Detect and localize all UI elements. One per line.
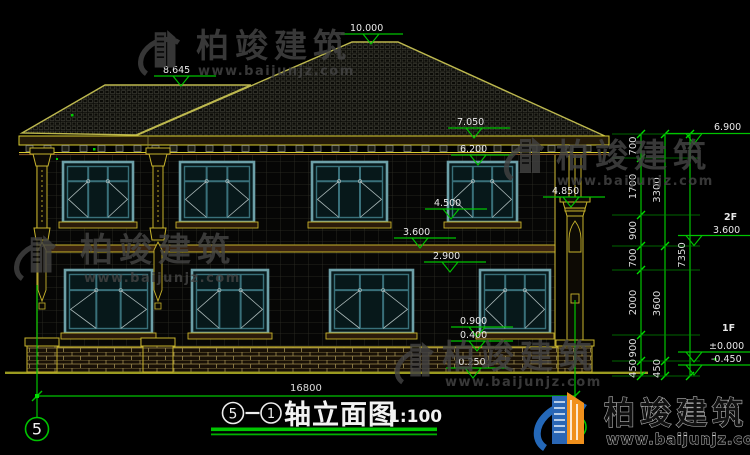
dentil	[314, 146, 321, 152]
level-6900: 6.900	[714, 122, 741, 133]
overall-width-value: 16800	[290, 383, 322, 394]
title-underline-thick	[211, 428, 437, 432]
watermark-brand: 柏竣建筑	[80, 230, 236, 269]
watermark-url: www.baijunjz.com	[84, 271, 241, 286]
dentil	[170, 146, 177, 152]
cad-elevation-drawing: 10.0008.6457.0506.2004.8504.5003.6002.90…	[0, 0, 750, 455]
dimension-value: 2000	[628, 290, 639, 315]
brand-url: www.baijunjz.com	[606, 432, 750, 448]
dimension-value: 900	[628, 338, 639, 357]
elevation-value: 2.900	[433, 251, 460, 262]
drawing-canvas: 10.0008.6457.0506.2004.8504.5003.6002.90…	[0, 0, 750, 455]
dentil	[116, 146, 123, 152]
watermark-url: www.baijunjz.com	[198, 64, 355, 79]
window-2f-1	[59, 162, 137, 228]
dentil	[350, 146, 357, 152]
watermark-brand: 柏竣建筑	[556, 136, 712, 175]
elevation-value: 6.200	[460, 144, 487, 155]
window-1f-3	[326, 270, 417, 339]
dentil	[242, 146, 249, 152]
watermark-url: www.baijunjz.com	[557, 174, 714, 189]
dentil	[296, 146, 303, 152]
dentil	[440, 146, 447, 152]
dimension-value: 900	[628, 221, 639, 240]
elevation-value: 4.500	[434, 198, 461, 209]
dentil	[260, 146, 267, 152]
watermark-url: www.baijunjz.com	[445, 375, 602, 390]
window-sill	[308, 222, 391, 228]
title-axis-5: 5	[229, 407, 238, 423]
window-sill	[326, 333, 417, 339]
dentil	[332, 146, 339, 152]
window-1f-4	[476, 270, 554, 339]
dentil	[278, 146, 285, 152]
dentil	[494, 146, 501, 152]
floor2-label: 2F	[724, 212, 737, 223]
watermark-brand: 柏竣建筑	[442, 337, 598, 376]
dimension-value: 450	[652, 359, 663, 378]
elevation-value: 8.645	[163, 65, 190, 76]
title-underline-thin	[211, 434, 437, 436]
dentil	[548, 146, 555, 152]
window-sill	[188, 333, 272, 339]
elevation-value: 7.050	[457, 117, 484, 128]
watermark-brand: 柏竣建筑	[196, 26, 352, 65]
window-sill	[176, 222, 258, 228]
dentil	[80, 146, 87, 152]
dentil	[206, 146, 213, 152]
dentil	[404, 146, 411, 152]
dimension-value: 7350	[677, 242, 688, 267]
dentil	[188, 146, 195, 152]
dimension-value: 450	[628, 359, 639, 378]
ground-level: -0.450	[711, 354, 742, 365]
floor1-level: ±0.000	[709, 341, 744, 352]
brand-logo-color: 柏竣建筑 www.baijunjz.com	[537, 392, 750, 448]
dentil	[134, 146, 141, 152]
dentil	[98, 146, 105, 152]
dentil	[62, 146, 69, 152]
dimension-value: 3600	[652, 291, 663, 316]
window-sill	[444, 222, 521, 228]
elevation-value: 10.000	[350, 23, 383, 34]
dentil	[224, 146, 231, 152]
dentil	[422, 146, 429, 152]
elevation-value: 3.600	[403, 227, 430, 238]
floor1-label: 1F	[722, 323, 735, 334]
axis-bubble-5-label: 5	[32, 420, 42, 439]
brand-name: 柏竣建筑	[604, 396, 748, 432]
floor2-level: 3.600	[713, 225, 740, 236]
dimension-value: 700	[628, 248, 639, 267]
dim-node	[35, 394, 39, 398]
window-2f-3	[308, 162, 391, 228]
dentil	[368, 146, 375, 152]
title-text: 轴立面图	[284, 399, 396, 431]
window-2f-2	[176, 162, 258, 228]
title-scale: 1:100	[388, 407, 442, 427]
window-sill	[59, 222, 137, 228]
dentil	[386, 146, 393, 152]
elevation-value: 0.900	[460, 316, 487, 327]
title-axis-1: 1	[267, 407, 275, 422]
